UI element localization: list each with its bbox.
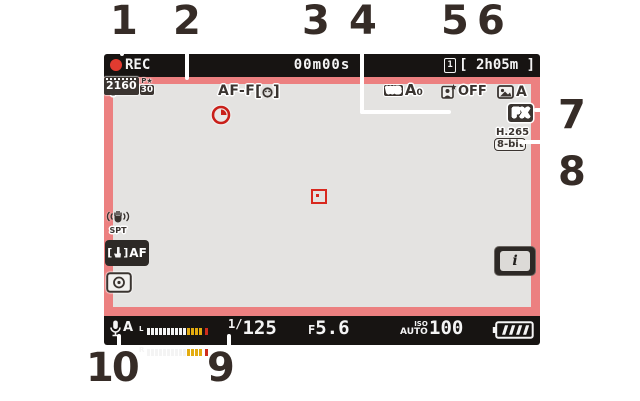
meter-bar-w bbox=[171, 349, 174, 356]
meter-bar-w bbox=[175, 328, 178, 335]
remaining-time-group: 1 [ 2h05m ] bbox=[444, 57, 535, 73]
rec-label: REC bbox=[125, 57, 150, 73]
callout-line-7 bbox=[534, 108, 560, 112]
meter-bar-y bbox=[187, 328, 190, 335]
i-menu-button[interactable]: i bbox=[494, 246, 536, 276]
top-status-bar: REC 00m00s 1 [ 2h05m ] bbox=[104, 54, 540, 77]
card-slot-icon: 1 bbox=[444, 58, 456, 73]
battery-icon bbox=[492, 321, 534, 339]
frame-size: 2160 bbox=[104, 77, 139, 95]
meter-bar-y bbox=[195, 349, 198, 356]
left-channel-bars bbox=[147, 320, 209, 339]
vr-hand-icon bbox=[106, 209, 130, 224]
shutter-value: 125 bbox=[242, 317, 276, 339]
aperture: F5.6 bbox=[308, 317, 350, 339]
left-channel-label: L bbox=[139, 326, 145, 333]
callout-number-3: 3 bbox=[302, 2, 328, 40]
mic-sensitivity-mode: A bbox=[123, 320, 133, 335]
meter-bar-y bbox=[191, 328, 194, 335]
callout-number-8: 8 bbox=[558, 153, 584, 191]
callout-number-4: 4 bbox=[349, 2, 375, 40]
meter-bar-w bbox=[163, 349, 166, 356]
touch-af-button[interactable]: [ ] AF bbox=[105, 240, 149, 266]
iso-auto-label: AUTO bbox=[400, 328, 428, 337]
vibration-reduction-indicator: SPT bbox=[105, 209, 131, 235]
bracket-left: [ bbox=[107, 248, 112, 258]
callout-line-4-horizontal bbox=[360, 110, 451, 114]
frame-rate: 30 bbox=[140, 85, 155, 95]
i-button-label: i bbox=[500, 251, 530, 271]
meter-bar-w bbox=[183, 349, 186, 356]
meter-bar-w bbox=[155, 349, 158, 356]
meter-bar-w bbox=[159, 349, 162, 356]
focus-point-dot bbox=[316, 194, 319, 197]
right-channel-label: R bbox=[139, 347, 145, 354]
meter-right-channel: R bbox=[139, 341, 209, 360]
image-area-indicator: FX bbox=[508, 104, 533, 122]
meter-bar-w bbox=[179, 328, 182, 335]
meter-bar-y bbox=[187, 349, 190, 356]
shutter-prefix: 1/ bbox=[228, 317, 242, 331]
callout-line-8-vertical bbox=[546, 140, 550, 158]
iso-value: 100 bbox=[429, 317, 463, 339]
focus-point[interactable] bbox=[311, 189, 327, 204]
meter-bar-y bbox=[199, 349, 202, 356]
meter-left-channel: L bbox=[139, 320, 209, 339]
callout-line-4-vertical bbox=[360, 38, 364, 114]
touch-finger-icon bbox=[113, 247, 122, 259]
callout-number-1: 1 bbox=[110, 2, 136, 40]
rec-dot-icon bbox=[110, 59, 122, 71]
card-slot-number: 1 bbox=[447, 60, 452, 70]
meter-bar-w bbox=[167, 328, 170, 335]
video-codec: H.265 bbox=[496, 127, 529, 138]
meter-bar-r bbox=[205, 328, 208, 335]
metering-mode-icon bbox=[106, 272, 132, 293]
recording-indicator: REC bbox=[110, 57, 150, 73]
meter-bar-w bbox=[155, 328, 158, 335]
meter-bar-w bbox=[179, 349, 182, 356]
camera-monitor: REC 00m00s 1 [ 2h05m ] P AF-F [ bbox=[104, 54, 540, 345]
meter-bar-w bbox=[147, 328, 150, 335]
meter-bar-w bbox=[167, 349, 170, 356]
recording-frame-border: P AF-F [ ] WB A0 bbox=[104, 77, 540, 316]
meter-bar-w bbox=[183, 328, 186, 335]
self-timer-icon bbox=[211, 105, 231, 125]
meter-bar-w bbox=[171, 328, 174, 335]
meter-bar-w bbox=[175, 349, 178, 356]
meter-bar-w bbox=[159, 328, 162, 335]
shutter-speed: 1/125 bbox=[228, 317, 277, 339]
callout-number-9: 9 bbox=[207, 349, 233, 387]
callout-line-8-tail bbox=[546, 158, 558, 162]
meter-bar-y bbox=[195, 328, 198, 335]
bottom-status-bar: A L R 1/125 F5.6 ISO AUTO bbox=[104, 316, 540, 345]
vr-mode: SPT bbox=[105, 227, 131, 235]
callout-number-7: 7 bbox=[558, 96, 584, 134]
callout-number-6: 6 bbox=[477, 2, 503, 40]
callout-number-10: 10 bbox=[86, 349, 138, 387]
iso-mode-group: ISO AUTO bbox=[400, 320, 428, 337]
camera-display-diagram: REC 00m00s 1 [ 2h05m ] P AF-F [ bbox=[0, 0, 640, 401]
aperture-value: 5.6 bbox=[315, 317, 349, 339]
recording-timecode: 00m00s bbox=[294, 57, 351, 73]
callout-number-5: 5 bbox=[441, 2, 467, 40]
meter-bar-w bbox=[163, 328, 166, 335]
bracket-right: ] bbox=[123, 248, 128, 258]
meter-bar-w bbox=[151, 328, 154, 335]
meter-bar-y bbox=[191, 349, 194, 356]
frame-size-rate-indicator: 2160 P★ 30 bbox=[104, 77, 540, 95]
time-remaining: [ 2h05m ] bbox=[459, 57, 535, 73]
frame-rate-group: P★ 30 bbox=[140, 77, 155, 95]
callout-number-2: 2 bbox=[173, 2, 199, 40]
right-channel-bars bbox=[147, 341, 209, 360]
meter-bar-w bbox=[151, 349, 154, 356]
meter-bar-w bbox=[147, 349, 150, 356]
audio-level-meter: L R bbox=[139, 320, 209, 360]
frame-quality: P★ bbox=[141, 77, 152, 85]
meter-bar-y bbox=[199, 328, 202, 335]
touch-af-label: AF bbox=[129, 246, 146, 260]
